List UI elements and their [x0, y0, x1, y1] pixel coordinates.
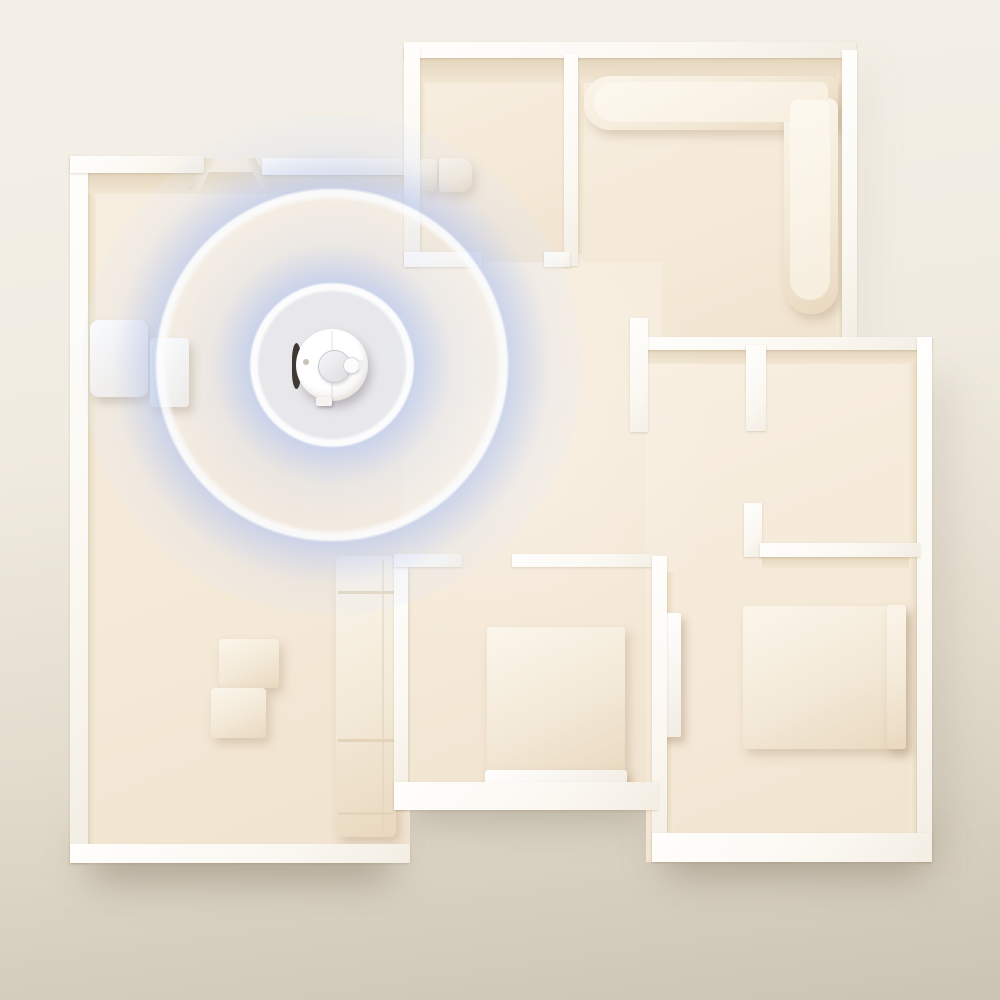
bathroom-cabinet-left	[420, 159, 437, 191]
living-room-floor	[78, 160, 410, 860]
drop-shadow-bottom-mid	[410, 780, 650, 818]
bottom-right-room-west-wall-face	[667, 572, 674, 832]
hallway-floor	[402, 262, 662, 810]
robot-sensor-dot	[303, 359, 309, 365]
wall-bottom-right-bottom	[652, 833, 932, 862]
coffee-table-upper	[219, 639, 279, 688]
wall-right-wing-left-stub	[630, 318, 648, 432]
bed-middle-room	[487, 627, 625, 779]
robot-body	[296, 329, 368, 401]
top-right-room-west-wall-face	[577, 82, 584, 254]
wall-closet-divider-stub	[746, 345, 766, 431]
top-right-room-north-wall-face	[577, 57, 843, 83]
robot-vacuum	[0, 0, 1000, 1000]
bed-right-room	[743, 606, 906, 749]
lighting-layer	[0, 0, 1000, 1000]
wall-living-top-left	[70, 156, 204, 173]
wall-top-middle-stub-left	[404, 252, 482, 267]
bathroom-cabinet-right	[439, 158, 472, 192]
wall-face-layer	[0, 0, 1000, 1000]
living-room-sofa-seam-3	[338, 812, 394, 815]
charging-dock-ramp	[150, 338, 189, 407]
wall-middle-room-stub-b	[512, 554, 660, 567]
robot-rear-tab	[316, 397, 332, 406]
top-right-room-east-wall-face	[836, 76, 844, 342]
top-middle-room-west-wall-face	[418, 82, 425, 254]
wall-bottom-right-room-left	[652, 556, 667, 861]
right-wing-floor	[646, 342, 932, 862]
top-middle-room-north-wall-face	[418, 57, 568, 83]
living-room-north-wall-face	[88, 172, 412, 194]
lidar-turret-icon	[318, 350, 351, 383]
wall-top-outer	[404, 42, 856, 58]
top-right-room-floor	[570, 52, 852, 346]
wall-right-wing-top	[636, 337, 932, 350]
floor-layer	[0, 0, 1000, 1000]
wall-middle-room-bottom	[394, 782, 658, 810]
living-room-sofa	[336, 556, 396, 837]
lidar-turret-stem	[358, 360, 364, 369]
wall-right-outer	[917, 337, 932, 862]
room-highlight	[250, 200, 750, 700]
entry-door-jamb-left	[187, 158, 216, 190]
drop-shadow-top-block	[850, 70, 864, 340]
drop-shadow-right-wall	[922, 380, 944, 840]
sectional-sofa-seat-horizontal	[594, 82, 828, 122]
coffee-table-lower	[211, 688, 266, 738]
wall-middle-room-stub-a	[394, 554, 462, 567]
wall-l-horizontal	[760, 543, 920, 557]
sectional-sofa-seat-vertical	[790, 100, 830, 300]
wall-middle-room-left	[394, 556, 408, 810]
floorplan-render	[0, 0, 1000, 1000]
top-middle-room-floor	[410, 54, 572, 266]
sectional-sofa-back-vertical	[784, 98, 838, 314]
wardrobe-panel	[660, 613, 681, 737]
lidar-rings	[82, 115, 582, 615]
wall-left-outer	[70, 156, 88, 863]
entry-door-jamb-right	[245, 158, 272, 190]
living-room-sofa-back-line	[382, 560, 384, 834]
lidar-turret-knob	[343, 357, 360, 374]
bed-middle-room-footboard	[485, 770, 627, 789]
middle-room-west-wall-face	[406, 570, 413, 782]
living-room-sofa-seam-2	[338, 739, 394, 742]
wall-living-top-right	[262, 158, 412, 175]
wall-l-vertical	[744, 503, 762, 557]
wall-layer	[0, 0, 1000, 1000]
sectional-sofa-back-horizontal	[584, 76, 838, 130]
living-room-west-wall-face	[88, 193, 96, 845]
bed-right-room-headboard	[887, 605, 906, 749]
right-wing-north-wall-face	[646, 349, 920, 364]
living-room-sofa-seam-1	[338, 591, 394, 594]
furniture-layer	[0, 0, 1000, 1000]
charging-dock	[90, 320, 148, 397]
wall-top-room-divider	[564, 54, 578, 266]
wall-top-middle-stub-right	[544, 252, 570, 267]
right-wing-east-wall-face	[909, 362, 918, 848]
wall-top-block-right	[842, 50, 857, 346]
bottom-right-room-north-wall-face	[762, 556, 914, 568]
drop-shadow-bottom-right	[665, 828, 925, 873]
wall-living-bottom	[70, 844, 410, 863]
robot-body-seam	[331, 331, 333, 399]
robot-bumper	[292, 343, 301, 389]
drop-shadow-bottom-left	[90, 835, 390, 880]
wall-top-block-left	[404, 48, 420, 266]
shadow-layer	[0, 0, 1000, 1000]
